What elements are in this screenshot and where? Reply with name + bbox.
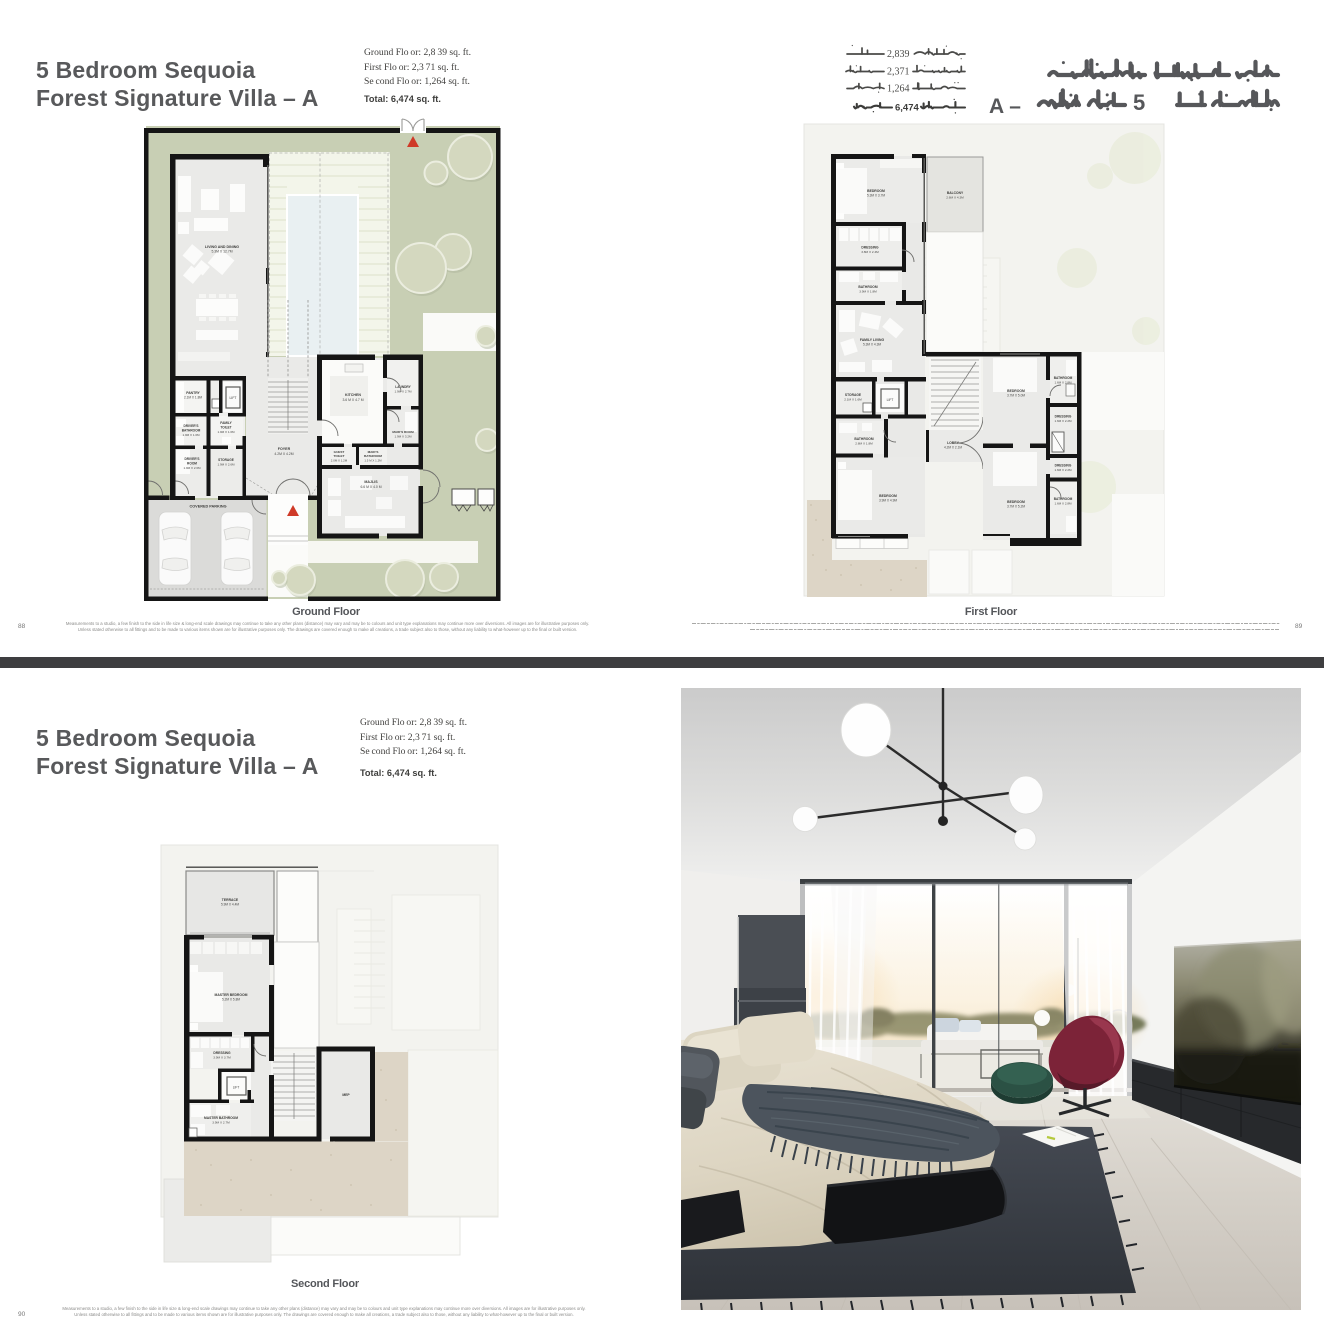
svg-text:FAMILY LIVING: FAMILY LIVING	[860, 338, 885, 342]
svg-text:2.6M X 4.3M: 2.6M X 4.3M	[946, 196, 964, 200]
svg-text:5.3M X 4.3M: 5.3M X 4.3M	[863, 343, 881, 347]
svg-text:2.8M X 1.8M: 2.8M X 1.8M	[855, 442, 873, 446]
svg-text:LIVING AND DINING: LIVING AND DINING	[205, 245, 239, 249]
svg-text:2.0M X 1.2M: 2.0M X 1.2M	[331, 458, 348, 462]
svg-text:STORAGE: STORAGE	[845, 393, 862, 397]
svg-text:3.9M X 1.8M: 3.9M X 1.8M	[859, 290, 877, 294]
svg-text:TOILET: TOILET	[220, 425, 231, 429]
svg-text:1.6M X 2.8M: 1.6M X 2.8M	[1054, 380, 1072, 384]
svg-text:BEDROOM: BEDROOM	[1007, 500, 1025, 504]
svg-text:A –: A –	[989, 95, 1021, 117]
svg-text:2,839: 2,839	[887, 49, 910, 60]
svg-text:1.5 M X 1.2M: 1.5 M X 1.2M	[364, 458, 382, 462]
svg-text:BALCONY: BALCONY	[947, 191, 964, 195]
svg-text:BATHROOM: BATHROOM	[1054, 376, 1073, 380]
svg-text:4.2M X 4.2M: 4.2M X 4.2M	[274, 452, 293, 456]
svg-text:MASTER BEDROOM: MASTER BEDROOM	[215, 993, 248, 997]
svg-text:1.6M X 2.8M: 1.6M X 2.8M	[1054, 501, 1072, 505]
svg-text:5.2M X 5.8M: 5.2M X 5.8M	[222, 998, 240, 1002]
svg-text:PANTRY: PANTRY	[186, 391, 200, 395]
svg-text:5.3M X 12.7M: 5.3M X 12.7M	[211, 250, 232, 254]
svg-text:1.6M X 2.2M: 1.6M X 2.2M	[1054, 468, 1072, 472]
svg-text:3.9M X 3.7M: 3.9M X 3.7M	[213, 1056, 231, 1060]
svg-text:DRIVER’S: DRIVER’S	[184, 457, 199, 461]
svg-text:ROOM: ROOM	[187, 461, 197, 465]
svg-text:DRESSING: DRESSING	[213, 1051, 231, 1055]
svg-text:3.7M X 5.2M: 3.7M X 5.2M	[1007, 505, 1025, 509]
svg-text:MAJLIS: MAJLIS	[364, 480, 378, 484]
svg-text:BATHROOM: BATHROOM	[182, 428, 201, 432]
svg-text:3.7M X 5.0M: 3.7M X 5.0M	[1007, 394, 1025, 398]
svg-text:1.9M X 1.6M: 1.9M X 1.6M	[217, 430, 235, 434]
svg-text:3.6 M X 4.7 M: 3.6 M X 4.7 M	[342, 398, 363, 402]
svg-text:LIFT: LIFT	[233, 1086, 240, 1090]
svg-text:1.9M X 3.2M: 1.9M X 3.2M	[394, 434, 412, 438]
svg-text:LIFT: LIFT	[887, 398, 894, 402]
svg-text:3.9M X 4.9M: 3.9M X 4.9M	[879, 499, 897, 503]
svg-text:6,474: 6,474	[895, 103, 919, 114]
svg-text:2,371: 2,371	[887, 67, 910, 78]
svg-text:MAID’S ROOM: MAID’S ROOM	[392, 430, 414, 434]
svg-text:BEDROOM: BEDROOM	[879, 494, 897, 498]
svg-text:5.3M X 3.7M: 5.3M X 3.7M	[867, 194, 885, 198]
svg-text:3.9M X 2.7M: 3.9M X 2.7M	[212, 1121, 230, 1125]
svg-text:LAUNDRY: LAUNDRY	[395, 385, 411, 389]
svg-text:MEP: MEP	[342, 1093, 350, 1097]
svg-text:2.1M X 1.6M: 2.1M X 1.6M	[844, 398, 862, 402]
svg-text:MASTER BATHROOM: MASTER BATHROOM	[204, 1116, 238, 1120]
svg-text:BATHROOM: BATHROOM	[854, 437, 873, 441]
svg-text:1.6M X 2.2M: 1.6M X 2.2M	[1054, 419, 1072, 423]
svg-text:1.9M X 2.7M: 1.9M X 2.7M	[394, 390, 412, 394]
svg-text:1.9M X 2.6M: 1.9M X 2.6M	[217, 462, 235, 466]
svg-text:COVERED PARKING: COVERED PARKING	[189, 505, 226, 509]
svg-text:FAMILY: FAMILY	[220, 421, 232, 425]
svg-text:1.9M X 1.6M: 1.9M X 1.6M	[182, 433, 200, 437]
svg-text:BEDROOM: BEDROOM	[1007, 389, 1025, 393]
svg-text:BATHROOM: BATHROOM	[1054, 497, 1073, 501]
svg-text:BEDROOM: BEDROOM	[867, 189, 885, 193]
svg-text:4.2M X 2.1M: 4.2M X 2.1M	[944, 446, 962, 450]
svg-text:1.9M X 2.6M: 1.9M X 2.6M	[183, 466, 201, 470]
svg-text:5: 5	[1133, 90, 1145, 115]
svg-text:1,264: 1,264	[887, 84, 910, 95]
svg-text:LIFT: LIFT	[230, 396, 237, 400]
svg-text:DRIVER’S: DRIVER’S	[183, 424, 198, 428]
svg-text:STORAGE: STORAGE	[218, 458, 234, 462]
svg-text:BATHROOM: BATHROOM	[858, 285, 877, 289]
svg-text:FOYER: FOYER	[278, 447, 291, 451]
svg-text:TERRACE: TERRACE	[222, 898, 239, 902]
svg-text:6.6 M X 4.0 M: 6.6 M X 4.0 M	[360, 485, 381, 489]
svg-text:2.1M X 1.8M: 2.1M X 1.8M	[184, 396, 202, 400]
svg-text:5.9M X 4.4M: 5.9M X 4.4M	[221, 903, 239, 907]
svg-text:DRESSING: DRESSING	[861, 246, 879, 250]
svg-text:KITCHEN: KITCHEN	[345, 393, 361, 397]
svg-text:3.8M X 2.4M: 3.8M X 2.4M	[861, 250, 879, 254]
